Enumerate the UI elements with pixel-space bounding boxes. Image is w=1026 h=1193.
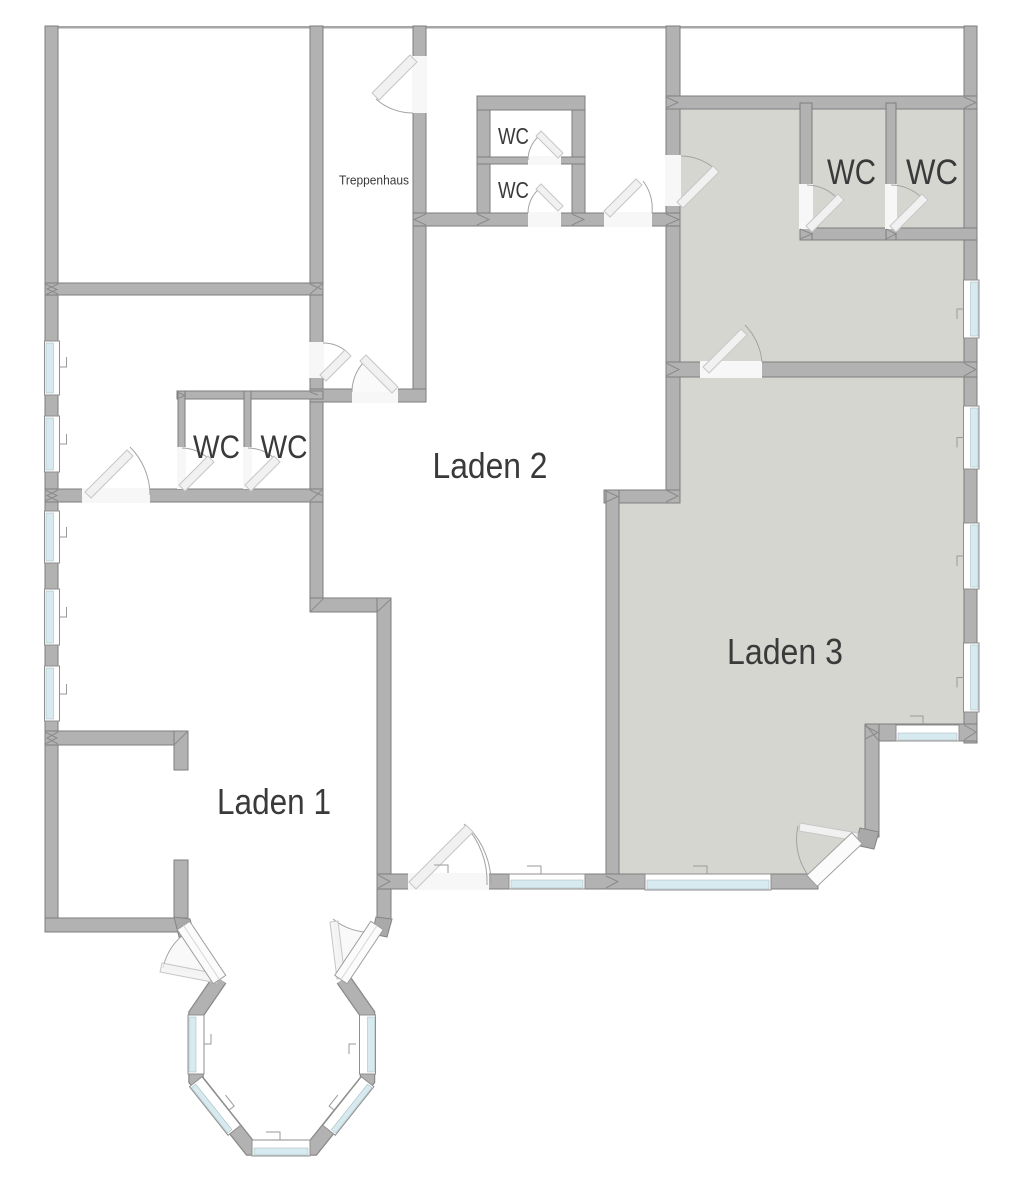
svg-text:Laden 1: Laden 1 [217,781,331,822]
svg-text:WC: WC [261,429,308,465]
svg-text:WC: WC [193,429,240,465]
svg-text:Laden 2: Laden 2 [433,445,548,486]
svg-text:WC: WC [498,123,529,149]
svg-text:Laden 3: Laden 3 [727,631,843,672]
svg-text:WC: WC [498,177,529,203]
svg-text:WC: WC [906,153,958,192]
svg-text:Treppenhaus: Treppenhaus [339,173,409,188]
svg-text:WC: WC [827,153,876,192]
